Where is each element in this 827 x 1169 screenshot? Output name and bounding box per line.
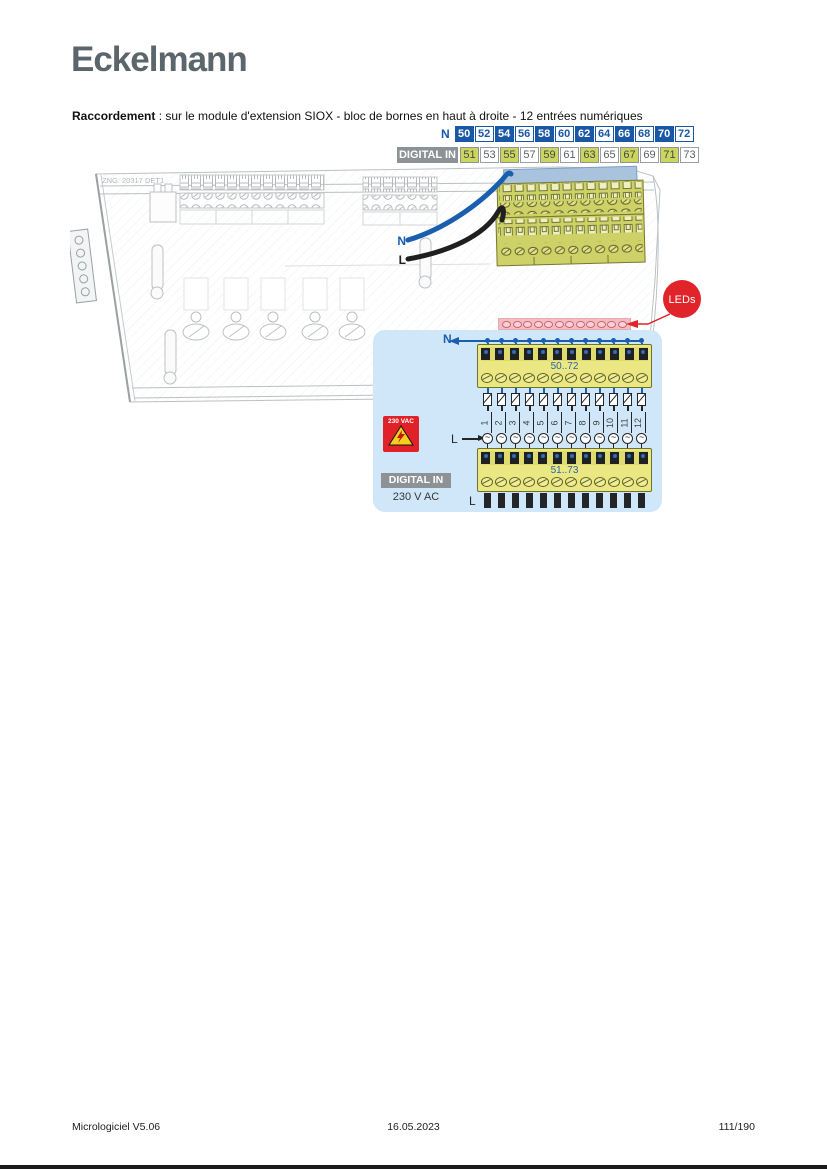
screw-icon bbox=[622, 373, 634, 383]
terminal-hole-icon bbox=[481, 452, 490, 464]
terminal-cell-even: 64 bbox=[595, 126, 614, 142]
channel-number: 4 bbox=[523, 412, 536, 433]
terminal-hole-icon bbox=[481, 348, 490, 360]
screw-icon bbox=[523, 477, 535, 487]
led-dot-icon bbox=[523, 321, 532, 328]
terminal-hole-icon bbox=[567, 348, 576, 360]
screw-icon bbox=[537, 477, 549, 487]
terminal-block-51-73: 51..73 bbox=[477, 448, 652, 492]
ac-source-icon: ~ bbox=[621, 433, 634, 448]
ac-source-icon: ~ bbox=[607, 433, 620, 448]
page-title-keyword: Raccordement bbox=[72, 109, 155, 123]
terminal-cell-even: 72 bbox=[675, 126, 694, 142]
l-wires-row bbox=[481, 493, 648, 508]
terminal-hole-icon bbox=[610, 348, 619, 360]
wire-bar-icon bbox=[565, 493, 578, 508]
ac-source-icon: ~ bbox=[509, 433, 522, 448]
channel-numbers-row: 123456789101112 bbox=[481, 412, 648, 433]
terminal-block-50-72: 50..72 bbox=[477, 344, 652, 388]
terminal-cell-even: 54 bbox=[495, 126, 514, 142]
terminal-block-bottom-label: 51..73 bbox=[481, 465, 648, 476]
terminal-cell-even: 70 bbox=[655, 126, 674, 142]
ac-source-icon: ~ bbox=[537, 433, 550, 448]
ac-source-icon: ~ bbox=[593, 433, 606, 448]
switch-contact-icon bbox=[621, 388, 634, 411]
led-dot-icon bbox=[586, 321, 595, 328]
led-dot-icon bbox=[607, 321, 616, 328]
terminal-hole-icon bbox=[510, 348, 519, 360]
terminal-cell-even: 68 bbox=[635, 126, 654, 142]
screw-icon bbox=[495, 477, 507, 487]
ac-source-icon: ~ bbox=[481, 433, 494, 448]
switch-contact-icon bbox=[551, 388, 564, 411]
switch-contact-icon bbox=[509, 388, 522, 411]
led-dot-icon bbox=[565, 321, 574, 328]
terminal-hole-icon bbox=[495, 348, 504, 360]
footer-date: 16.05.2023 bbox=[387, 1121, 440, 1133]
screw-icon bbox=[509, 373, 521, 383]
wire-bar-icon bbox=[551, 493, 564, 508]
switch-contact-icon bbox=[565, 388, 578, 411]
terminal-hole-icon bbox=[610, 452, 619, 464]
wire-bar-icon bbox=[537, 493, 550, 508]
leds-badge-label: LEDs bbox=[669, 294, 696, 306]
screw-icon bbox=[523, 373, 535, 383]
wire-bar-icon bbox=[579, 493, 592, 508]
led-dot-icon bbox=[597, 321, 606, 328]
ac-source-icon: ~ bbox=[635, 433, 648, 448]
left-connector-sketch bbox=[70, 229, 96, 303]
ac-source-icon: ~ bbox=[495, 433, 508, 448]
terminal-hole-icon bbox=[596, 452, 605, 464]
warning-triangle-icon bbox=[388, 425, 414, 447]
led-dot-icon bbox=[544, 321, 553, 328]
wire-bar-icon bbox=[495, 493, 508, 508]
leds-callout: LEDs bbox=[618, 278, 710, 330]
channel-number: 1 bbox=[481, 412, 494, 433]
screw-icon bbox=[580, 373, 592, 383]
terminal-cell-even: 52 bbox=[475, 126, 494, 142]
terminal-hole-icon bbox=[553, 348, 562, 360]
channel-number: 2 bbox=[495, 412, 508, 433]
screw-icon bbox=[636, 373, 648, 383]
led-dot-icon bbox=[534, 321, 543, 328]
terminal-cell-even: 58 bbox=[535, 126, 554, 142]
page-title-text: : sur le module d'extension SIOX - bloc … bbox=[155, 109, 642, 123]
screw-icon bbox=[565, 373, 577, 383]
terminal-cell-even: 62 bbox=[575, 126, 594, 142]
terminal-cell-even: 50 bbox=[455, 126, 474, 142]
switch-contact-icon bbox=[635, 388, 648, 411]
warning-label: 230 VAC bbox=[388, 418, 414, 425]
detail-voltage-label: 230 V AC bbox=[383, 491, 449, 503]
led-dot-icon bbox=[576, 321, 585, 328]
eckelmann-logo: Eckelmann bbox=[71, 40, 247, 80]
wire-bar-icon bbox=[523, 493, 536, 508]
screw-icon bbox=[594, 477, 606, 487]
channel-number: 5 bbox=[537, 412, 550, 433]
switch-contact-icon bbox=[537, 388, 550, 411]
digital-in-terminal-assembly bbox=[495, 166, 645, 266]
screw-icon bbox=[594, 373, 606, 383]
ac-sources-row: ~~~~~~~~~~~~ bbox=[481, 433, 648, 448]
led-dot-icon bbox=[513, 321, 522, 328]
screw-icon bbox=[580, 477, 592, 487]
screw-icon bbox=[509, 477, 521, 487]
screw-icon bbox=[495, 373, 507, 383]
wire-bar-icon bbox=[635, 493, 648, 508]
channel-number: 10 bbox=[607, 412, 620, 433]
detail-l-bottom-label: L bbox=[469, 494, 476, 508]
channel-number: 7 bbox=[565, 412, 578, 433]
terminal-hole-icon bbox=[495, 452, 504, 464]
terminal-hole-icon bbox=[524, 348, 533, 360]
switch-contact-icon bbox=[481, 388, 494, 411]
channel-number: 3 bbox=[509, 412, 522, 433]
terminal-hole-icon bbox=[538, 452, 547, 464]
terminal-cell-even: 66 bbox=[615, 126, 634, 142]
footer-version: Micrologiciel V5.06 bbox=[72, 1121, 160, 1133]
terminal-hole-icon bbox=[625, 452, 634, 464]
detail-l-label: L bbox=[451, 432, 458, 446]
terminal-row-n: N 505254565860626466687072 bbox=[441, 126, 694, 142]
screw-icon bbox=[481, 373, 493, 383]
terminal-hole-icon bbox=[596, 348, 605, 360]
screw-icon bbox=[481, 477, 493, 487]
screw-icon bbox=[608, 477, 620, 487]
screw-icon bbox=[636, 477, 648, 487]
wire-bar-icon bbox=[481, 493, 494, 508]
screw-icon bbox=[537, 373, 549, 383]
wiring-detail-panel: N 50..72 bbox=[373, 330, 662, 512]
page-title: Raccordement : sur le module d'extension… bbox=[72, 109, 643, 123]
terminal-hole-icon bbox=[567, 452, 576, 464]
page-bottom-edge bbox=[0, 1165, 827, 1169]
screw-icon bbox=[565, 477, 577, 487]
channel-number: 6 bbox=[551, 412, 564, 433]
switch-contact-icon bbox=[495, 388, 508, 411]
channel-number: 8 bbox=[579, 412, 592, 433]
led-dot-icon bbox=[555, 321, 564, 328]
terminal-block-top-label: 50..72 bbox=[481, 361, 648, 372]
footer-page-number: 111/190 bbox=[719, 1121, 755, 1133]
led-dot-icon bbox=[502, 321, 511, 328]
switch-contact-icon bbox=[593, 388, 606, 411]
ac-source-icon: ~ bbox=[579, 433, 592, 448]
wire-n-label: N bbox=[397, 234, 406, 248]
switch-contacts-row bbox=[481, 388, 648, 411]
wire-bar-icon bbox=[509, 493, 522, 508]
wire-bar-icon bbox=[593, 493, 606, 508]
wire-bar-icon bbox=[621, 493, 634, 508]
n-row-cells: 505254565860626466687072 bbox=[455, 126, 694, 142]
terminal-holes-row bbox=[481, 451, 648, 465]
screw-icon bbox=[622, 477, 634, 487]
switch-contact-icon bbox=[523, 388, 536, 411]
terminal-hole-icon bbox=[639, 348, 648, 360]
wire-l-label: L bbox=[399, 253, 406, 267]
terminal-cell-odd: 73 bbox=[680, 147, 699, 163]
switch-contact-icon bbox=[579, 388, 592, 411]
terminal-cell-even: 56 bbox=[515, 126, 534, 142]
terminal-hole-icon bbox=[510, 452, 519, 464]
channel-number: 12 bbox=[635, 412, 648, 433]
terminal-hole-icon bbox=[538, 348, 547, 360]
screw-icon bbox=[608, 373, 620, 383]
detail-digital-in-badge: DIGITAL IN bbox=[381, 473, 451, 488]
ac-source-icon: ~ bbox=[551, 433, 564, 448]
screw-icon bbox=[551, 373, 563, 383]
screw-icon bbox=[551, 477, 563, 487]
terminal-hole-icon bbox=[582, 452, 591, 464]
terminal-screws-row bbox=[481, 476, 648, 488]
led-strip bbox=[498, 318, 631, 330]
ac-source-icon: ~ bbox=[523, 433, 536, 448]
terminal-hole-icon bbox=[524, 452, 533, 464]
terminal-hole-icon bbox=[639, 452, 648, 464]
terminal-holes-row bbox=[481, 347, 648, 361]
ac-source-icon: ~ bbox=[565, 433, 578, 448]
terminal-hole-icon bbox=[625, 348, 634, 360]
l-arrow-icon bbox=[462, 438, 478, 440]
callout-arrow-icon bbox=[626, 320, 638, 328]
terminal-hole-icon bbox=[582, 348, 591, 360]
switch-contact-icon bbox=[607, 388, 620, 411]
warning-230vac: 230 VAC bbox=[383, 416, 419, 452]
n-row-label: N bbox=[441, 127, 450, 141]
terminal-cell-even: 60 bbox=[555, 126, 574, 142]
terminal-screws-row bbox=[481, 372, 648, 384]
terminal-hole-icon bbox=[553, 452, 562, 464]
wire-bar-icon bbox=[607, 493, 620, 508]
